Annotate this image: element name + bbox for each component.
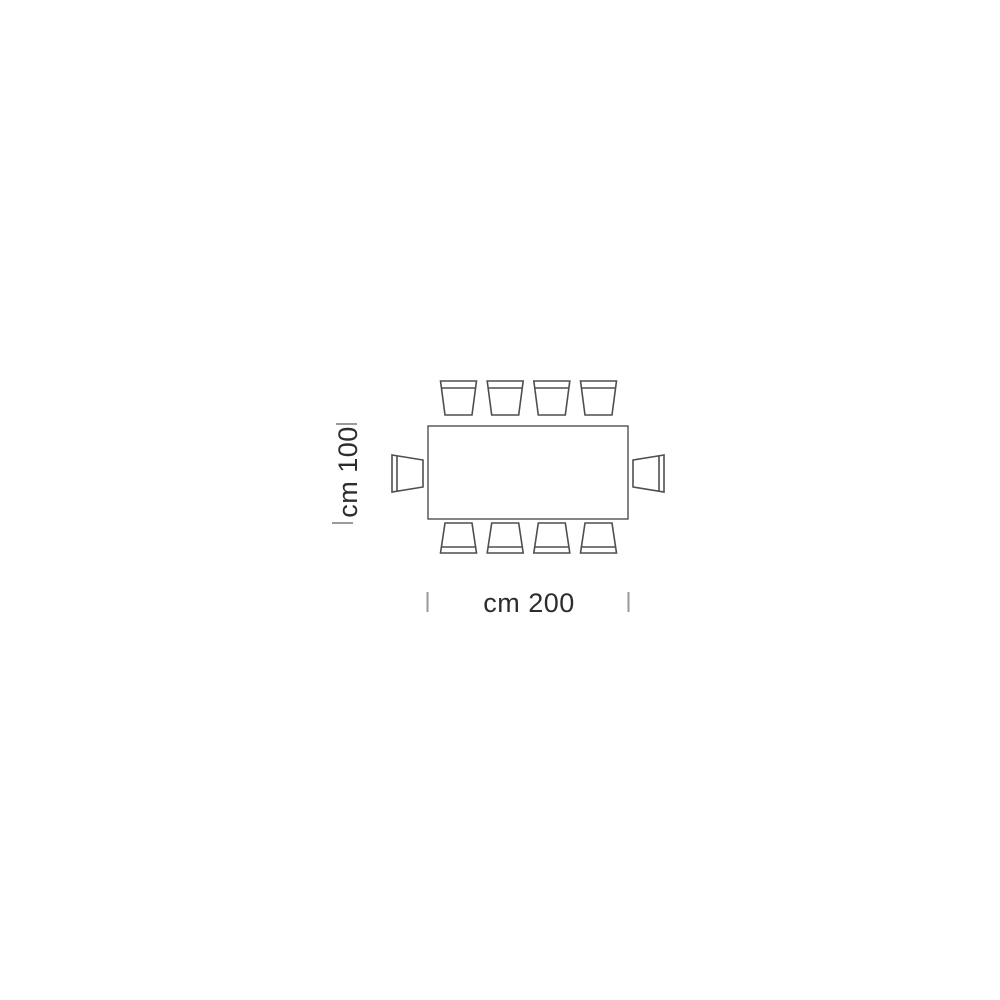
furniture-outlines bbox=[392, 381, 664, 553]
width-dimension-label: cm 200 bbox=[483, 588, 575, 618]
chair-left bbox=[392, 455, 423, 492]
chair-bottom-1 bbox=[441, 523, 477, 553]
chair-top-2 bbox=[487, 381, 523, 415]
table-top bbox=[428, 426, 628, 519]
chair-right bbox=[633, 455, 664, 492]
diagram-canvas: cm 100 cm 200 bbox=[0, 0, 1000, 1000]
height-dimension-label: cm 100 bbox=[333, 426, 363, 518]
plan-diagram: cm 100 cm 200 bbox=[0, 0, 1000, 1000]
chair-top-3 bbox=[534, 381, 570, 415]
chair-top-4 bbox=[581, 381, 617, 415]
chair-top-1 bbox=[441, 381, 477, 415]
chair-bottom-2 bbox=[487, 523, 523, 553]
chair-bottom-4 bbox=[581, 523, 617, 553]
chair-bottom-3 bbox=[534, 523, 570, 553]
